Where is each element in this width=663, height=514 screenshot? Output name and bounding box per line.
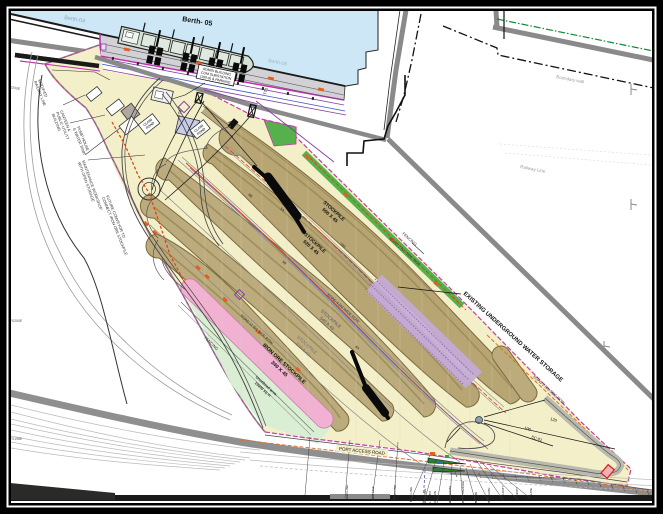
svg-text:W&O LINE: W&O LINE	[409, 487, 413, 502]
svg-text:IN GATE: IN GATE	[474, 492, 478, 504]
svg-text:F0200E: F0200E	[10, 319, 23, 323]
svg-text:EXISTING: EXISTING	[423, 488, 427, 503]
svg-text:OUT GATE: OUT GATE	[487, 487, 491, 503]
svg-text:SECURITY: SECURITY	[501, 485, 505, 501]
svg-text:LINE TO: LINE TO	[428, 490, 432, 503]
svg-text:MCC ROOM: MCC ROOM	[448, 486, 452, 504]
svg-text:R&D LINE: R&D LINE	[345, 485, 349, 499]
svg-text:F0198E: F0198E	[10, 437, 23, 441]
svg-text:CANOPY: CANOPY	[515, 487, 519, 500]
svg-text:W&O LINE: W&O LINE	[393, 485, 397, 500]
svg-text:S GATE: S GATE	[529, 488, 533, 499]
svg-text:REMAIN: REMAIN	[433, 491, 437, 503]
svg-text:WEIGH BRIDGE: WEIGH BRIDGE	[461, 481, 465, 504]
svg-text:9&D LINE: 9&D LINE	[371, 486, 375, 500]
